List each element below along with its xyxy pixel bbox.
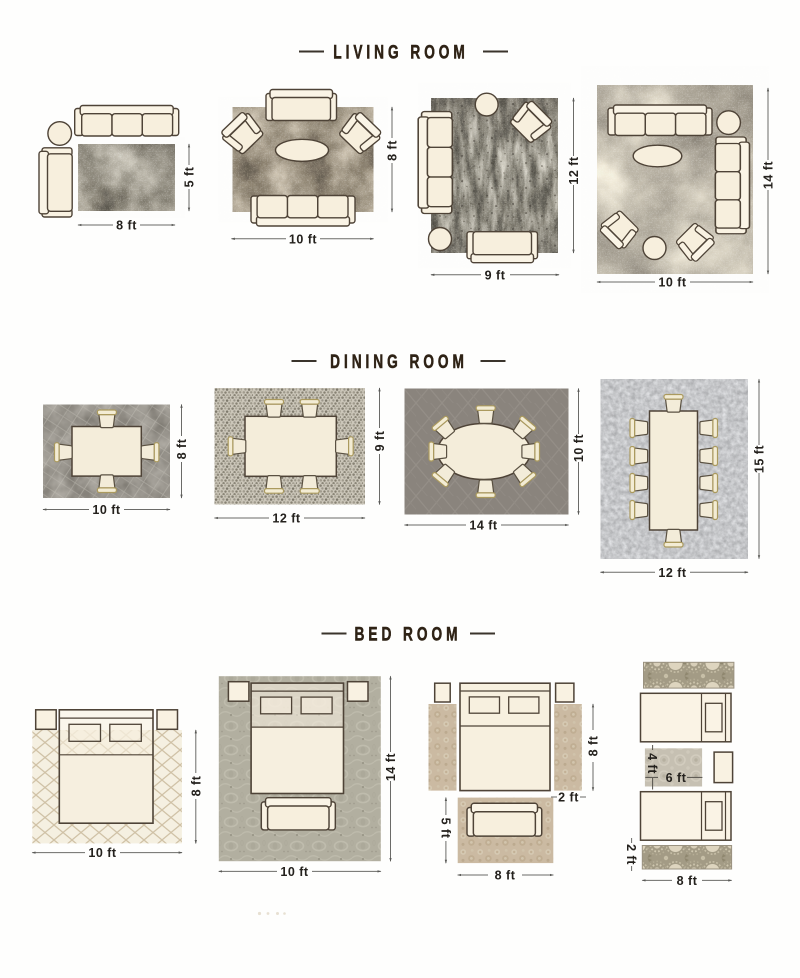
svg-text:10 ft: 10 ft xyxy=(92,503,121,517)
svg-text:10 ft: 10 ft xyxy=(572,434,586,463)
svg-text:5 ft: 5 ft xyxy=(438,818,452,839)
svg-text:9 ft: 9 ft xyxy=(373,430,387,451)
svg-text:8 ft: 8 ft xyxy=(189,775,203,796)
svg-text:5 ft: 5 ft xyxy=(183,166,197,187)
svg-text:9 ft: 9 ft xyxy=(485,268,506,282)
svg-text:10 ft: 10 ft xyxy=(280,865,309,879)
svg-text:6 ft: 6 ft xyxy=(666,771,687,785)
svg-text:15 ft: 15 ft xyxy=(753,445,767,474)
svg-text:BED ROOM: BED ROOM xyxy=(355,623,462,645)
svg-text:8 ft: 8 ft xyxy=(386,140,400,161)
svg-text:8 ft: 8 ft xyxy=(495,869,516,883)
svg-text:DINING ROOM: DINING ROOM xyxy=(330,351,468,373)
svg-text:8 ft: 8 ft xyxy=(587,735,601,756)
svg-text:10 ft: 10 ft xyxy=(658,276,687,290)
svg-text:10 ft: 10 ft xyxy=(88,846,117,860)
svg-text:12 ft: 12 ft xyxy=(272,512,301,526)
svg-text:14 ft: 14 ft xyxy=(762,161,776,190)
svg-text:2 ft: 2 ft xyxy=(624,844,638,865)
svg-text:2 ft: 2 ft xyxy=(558,791,579,805)
svg-text:LIVING ROOM: LIVING ROOM xyxy=(333,41,468,63)
svg-text:4 ft: 4 ft xyxy=(645,753,659,774)
svg-text:12 ft: 12 ft xyxy=(658,566,687,580)
svg-text:14 ft: 14 ft xyxy=(469,519,498,533)
svg-text:12 ft: 12 ft xyxy=(567,156,581,185)
svg-text:8 ft: 8 ft xyxy=(677,874,698,888)
svg-text:14 ft: 14 ft xyxy=(384,753,398,782)
svg-text:8 ft: 8 ft xyxy=(175,438,189,459)
svg-text:10 ft: 10 ft xyxy=(289,232,318,246)
svg-text:8 ft: 8 ft xyxy=(116,219,137,233)
